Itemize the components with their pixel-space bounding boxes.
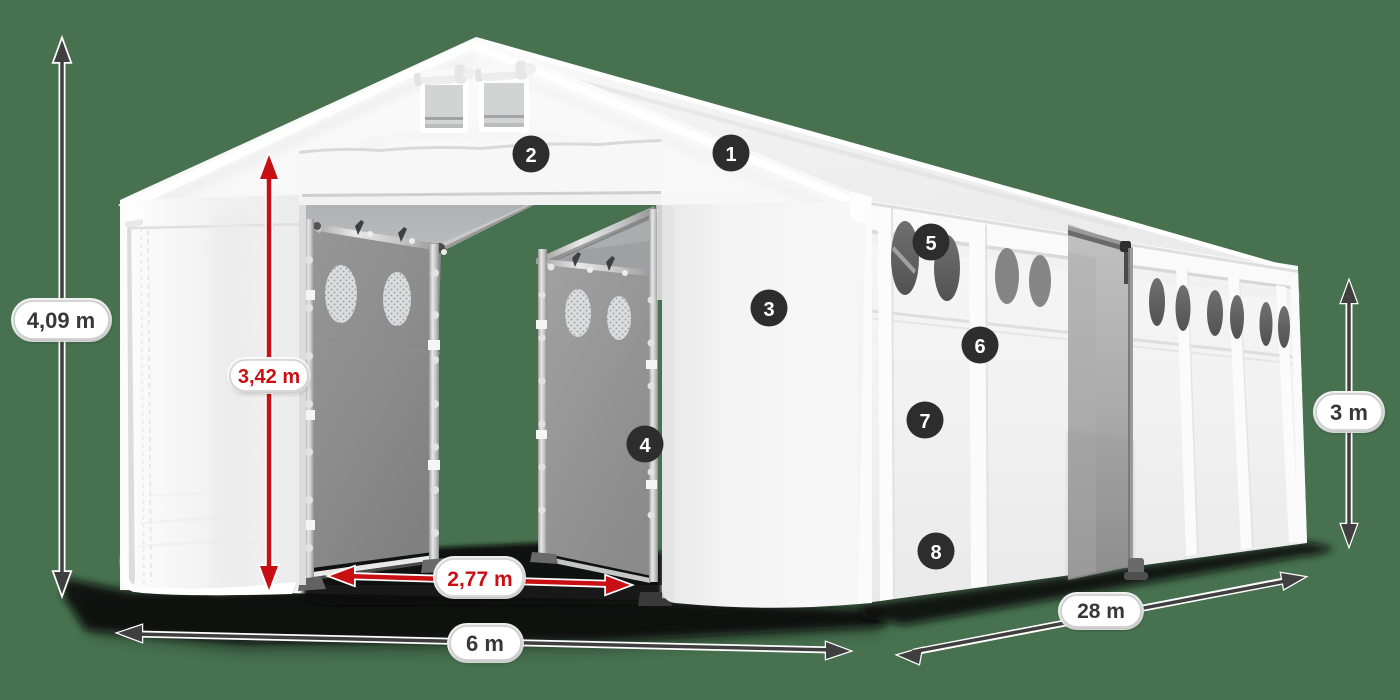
svg-text:2: 2 — [525, 145, 536, 167]
svg-text:3 m: 3 m — [1330, 400, 1368, 425]
svg-text:5: 5 — [925, 233, 936, 255]
svg-text:4,09 m: 4,09 m — [27, 308, 96, 333]
svg-text:2,77 m: 2,77 m — [447, 568, 512, 591]
svg-text:8: 8 — [930, 542, 941, 564]
svg-text:6: 6 — [974, 336, 985, 358]
svg-text:1: 1 — [725, 144, 736, 166]
svg-text:3: 3 — [763, 299, 774, 321]
svg-text:7: 7 — [919, 411, 930, 433]
svg-text:3,42 m: 3,42 m — [238, 366, 300, 388]
svg-text:4: 4 — [639, 435, 651, 457]
svg-text:28 m: 28 m — [1077, 600, 1125, 623]
svg-text:6 m: 6 m — [466, 631, 504, 656]
